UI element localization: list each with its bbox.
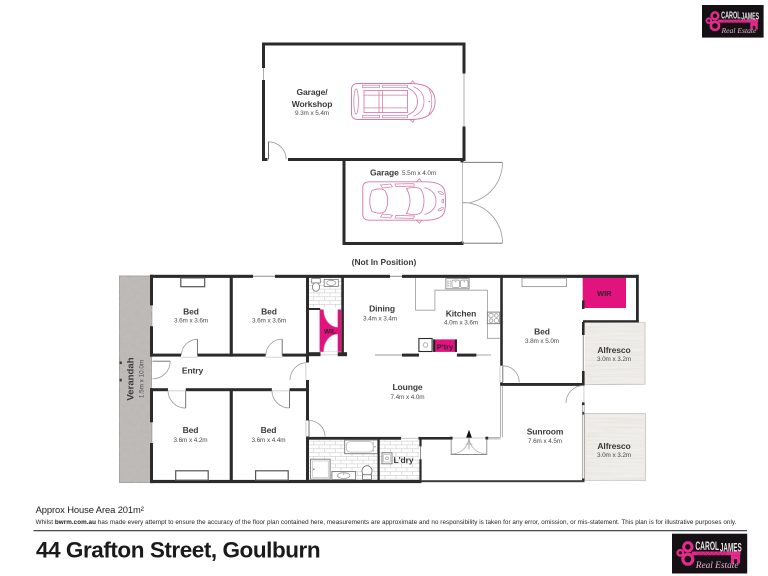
svg-text:Bed: Bed — [261, 307, 277, 317]
svg-text:3.4m x 3.4m: 3.4m x 3.4m — [363, 315, 397, 322]
svg-text:3.6m x 4.4m: 3.6m x 4.4m — [251, 437, 285, 444]
svg-text:1.5m x 10.0m: 1.5m x 10.0m — [139, 360, 146, 398]
svg-text:3.6m x 3.6m: 3.6m x 3.6m — [252, 318, 286, 325]
svg-text:4.0m x 3.6m: 4.0m x 3.6m — [444, 320, 478, 327]
svg-text:3.0m x 3.2m: 3.0m x 3.2m — [597, 356, 631, 363]
svg-text:WIL: WIL — [324, 328, 336, 335]
svg-text:Entry: Entry — [182, 366, 204, 376]
svg-text:Whilst bwrm.com.au has made ev: Whilst bwrm.com.au has made every attemp… — [36, 519, 737, 526]
svg-text:Dining: Dining — [369, 304, 395, 314]
svg-text:Sunroom: Sunroom — [527, 427, 564, 437]
svg-text:9.3m x 5.4m: 9.3m x 5.4m — [295, 110, 329, 117]
svg-text:3.6m x 4.2m: 3.6m x 4.2m — [173, 437, 207, 444]
svg-text:3.8m x 5.0m: 3.8m x 5.0m — [525, 338, 559, 345]
svg-text:Kitchen: Kitchen — [446, 309, 476, 319]
svg-text:7.4m x 4.0m: 7.4m x 4.0m — [390, 394, 424, 401]
svg-text:3.0m x 3.2m: 3.0m x 3.2m — [597, 452, 631, 459]
svg-text:Bed: Bed — [261, 425, 277, 435]
svg-text:Bed: Bed — [183, 425, 199, 435]
svg-text:Bed: Bed — [534, 327, 550, 337]
svg-text:Garage/: Garage/ — [297, 87, 329, 97]
svg-text:Bed: Bed — [183, 307, 199, 317]
svg-text:Alfresco: Alfresco — [597, 441, 630, 451]
svg-text:Workshop: Workshop — [292, 99, 333, 109]
svg-text:7.6m x 4.5m: 7.6m x 4.5m — [528, 438, 562, 445]
svg-text:Approx House Area 201m²: Approx House Area 201m² — [36, 504, 144, 515]
svg-text:Garage: Garage — [370, 168, 399, 178]
svg-text:44 Grafton Street, Goulburn: 44 Grafton Street, Goulburn — [36, 538, 320, 563]
svg-text:(Not In Position): (Not In Position) — [352, 257, 417, 267]
svg-text:L'dry: L'dry — [394, 455, 414, 465]
svg-text:Verandah: Verandah — [126, 357, 137, 400]
svg-text:P'try: P'try — [437, 342, 454, 351]
svg-text:Alfresco: Alfresco — [597, 345, 630, 355]
svg-text:3.6m x 3.6m: 3.6m x 3.6m — [174, 318, 208, 325]
svg-text:5.5m x 4.0m: 5.5m x 4.0m — [402, 170, 436, 177]
svg-text:WIR: WIR — [597, 289, 612, 298]
svg-text:Lounge: Lounge — [392, 382, 422, 392]
